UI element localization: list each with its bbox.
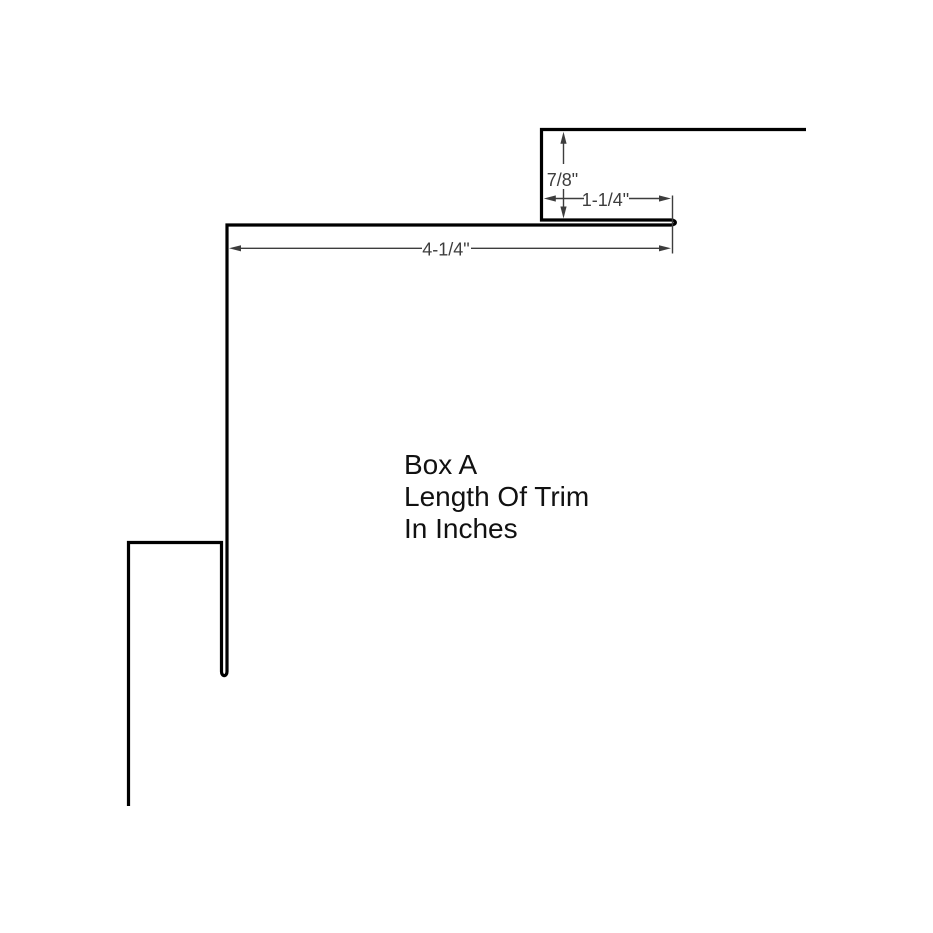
drawing-canvas: 7/8" 1-1/4" 4-1/4" Box A Length Of Trim … bbox=[0, 0, 933, 933]
title-block: Box A Length Of Trim In Inches bbox=[404, 449, 589, 545]
dim-1-1-4-arrow-right-icon bbox=[659, 195, 671, 201]
title-line-3: In Inches bbox=[404, 513, 589, 545]
dim-4-1-4-arrow-left-icon bbox=[229, 245, 241, 251]
title-line-1: Box A bbox=[404, 449, 589, 481]
dimension-4-1-4: 4-1/4" bbox=[229, 240, 671, 260]
dimension-7-8: 7/8" bbox=[547, 132, 578, 219]
dim-1-1-4-arrow-left-icon bbox=[544, 195, 556, 201]
dim-4-1-4-arrow-right-icon bbox=[659, 245, 671, 251]
title-line-2: Length Of Trim bbox=[404, 481, 589, 513]
dim-1-1-4-label: 1-1/4" bbox=[582, 190, 629, 210]
dim-4-1-4-label: 4-1/4" bbox=[422, 240, 469, 260]
dim-7-8-label: 7/8" bbox=[547, 170, 578, 190]
dim-7-8-arrow-down-icon bbox=[560, 207, 566, 219]
dim-7-8-arrow-up-icon bbox=[560, 132, 566, 144]
